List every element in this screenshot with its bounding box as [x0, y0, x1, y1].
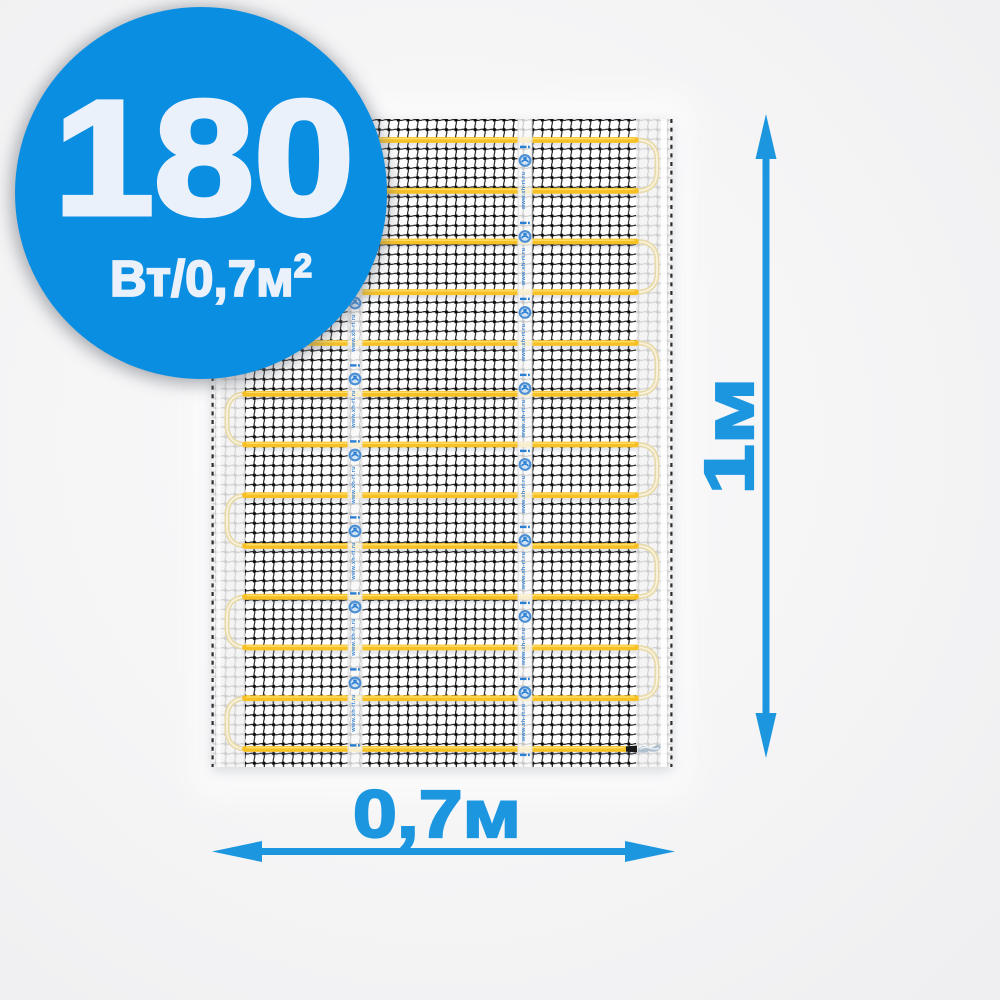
svg-text:www.xh-rt.ru: www.xh-rt.ru — [521, 703, 527, 742]
svg-text:www.xh-rt.ru: www.xh-rt.ru — [351, 694, 357, 733]
svg-text:180: 180 — [54, 66, 354, 249]
svg-text:www.xh-rt.ru: www.xh-rt.ru — [521, 475, 527, 514]
svg-text:www.xh-rt.ru: www.xh-rt.ru — [351, 390, 357, 429]
svg-text:Вт/0,7м2: Вт/0,7м2 — [110, 247, 312, 307]
svg-text:www.xh-rt.ru: www.xh-rt.ru — [521, 323, 527, 362]
svg-text:www.xh-rt.ru: www.xh-rt.ru — [521, 399, 527, 438]
svg-text:www.xh-rt.ru: www.xh-rt.ru — [351, 466, 357, 505]
svg-text:1м: 1м — [690, 378, 768, 495]
svg-text:www.xh-rt.ru: www.xh-rt.ru — [521, 171, 527, 210]
svg-text:www.xh-rt.ru: www.xh-rt.ru — [351, 618, 357, 657]
svg-text:www.xh-rt.ru: www.xh-rt.ru — [521, 627, 527, 666]
svg-text:www.xh-rt.ru: www.xh-rt.ru — [521, 247, 527, 286]
svg-text:www.xh-rt.ru: www.xh-rt.ru — [521, 551, 527, 590]
svg-text:www.xh-rt.ru: www.xh-rt.ru — [351, 314, 357, 353]
svg-text:0,7м: 0,7м — [353, 777, 521, 852]
svg-text:www.xh-rt.ru: www.xh-rt.ru — [351, 542, 357, 581]
